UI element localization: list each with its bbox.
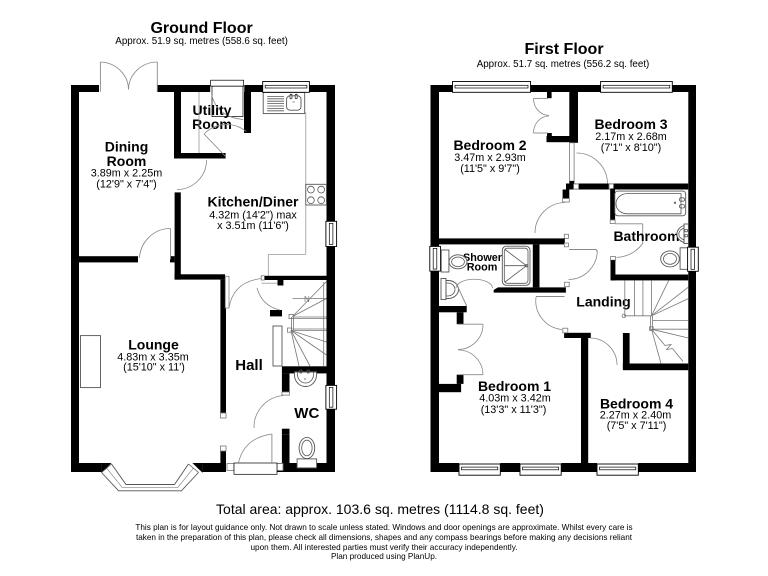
svg-text:Room: Room: [467, 261, 498, 273]
svg-text:Bedroom 1: Bedroom 1: [478, 378, 551, 394]
svg-text:(12'9" x 7'4"): (12'9" x 7'4"): [96, 179, 156, 191]
svg-text:Room: Room: [192, 116, 232, 132]
svg-text:taken in the preparation of th: taken in the preparation of this plan, p…: [136, 533, 633, 542]
svg-text:Plan produced using PlanUp.: Plan produced using PlanUp.: [331, 552, 437, 561]
svg-text:Approx. 51.7 sq. metres (556.2: Approx. 51.7 sq. metres (556.2 sq. feet): [477, 59, 650, 70]
svg-text:(7'5" x 7'11"): (7'5" x 7'11"): [607, 420, 667, 432]
svg-text:Ground Floor: Ground Floor: [150, 20, 252, 37]
svg-text:x 3.51m (11'6"): x 3.51m (11'6"): [217, 220, 289, 232]
svg-text:(7'1" x 8'10"): (7'1" x 8'10"): [601, 142, 661, 154]
svg-text:Approx. 51.9 sq. metres (558.6: Approx. 51.9 sq. metres (558.6 sq. feet): [115, 36, 288, 47]
svg-text:Hall: Hall: [235, 357, 263, 374]
svg-text:Landing: Landing: [576, 293, 630, 309]
svg-text:N: N: [304, 295, 310, 304]
svg-text:Bathroom: Bathroom: [613, 228, 679, 244]
svg-text:(15'10" x 11'): (15'10" x 11'): [123, 362, 185, 374]
svg-text:(11'5" x 9'7"): (11'5" x 9'7"): [460, 163, 520, 175]
svg-text:(13'3" x 11'3"): (13'3" x 11'3"): [481, 404, 547, 416]
svg-text:Bedroom 2: Bedroom 2: [453, 137, 526, 153]
svg-text:Room: Room: [107, 153, 147, 169]
svg-text:Lounge: Lounge: [128, 337, 179, 353]
svg-text:First Floor: First Floor: [524, 41, 603, 58]
svg-text:WC: WC: [294, 405, 319, 422]
svg-text:upon them. All interested part: upon them. All interested parties must v…: [251, 543, 518, 552]
svg-text:Bedroom 3: Bedroom 3: [594, 116, 667, 132]
svg-text:This plan is for layout guidan: This plan is for layout guidance only. N…: [135, 523, 632, 532]
svg-text:Total area: approx. 103.6 sq.: Total area: approx. 103.6 sq. metres (11…: [216, 501, 544, 517]
svg-text:4.03m x 3.42m: 4.03m x 3.42m: [479, 393, 550, 405]
svg-text:Kitchen/Diner: Kitchen/Diner: [207, 193, 299, 209]
